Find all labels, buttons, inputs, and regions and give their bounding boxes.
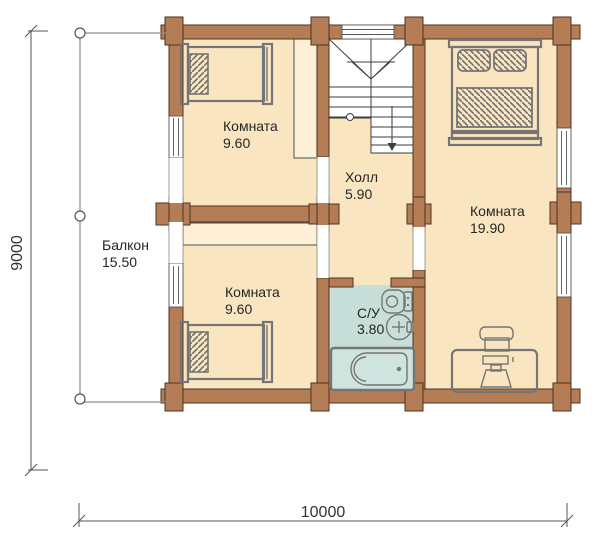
- floor-plan-svg: 9000 10000 Балкон 15.50 Комната 9.60 Хол…: [0, 0, 602, 548]
- room-door-opening: [317, 225, 329, 278]
- wall-bathroom-stub: [391, 278, 425, 287]
- window-icon: [169, 116, 183, 158]
- pillow-icon: [458, 50, 490, 71]
- pillow-icon: [494, 50, 526, 71]
- window-icon: [169, 263, 183, 307]
- window-icon: [342, 25, 394, 39]
- drain-icon: [397, 367, 401, 371]
- pillow-icon: [190, 332, 208, 372]
- balcony-post-icon: [75, 28, 85, 38]
- window-icon: [557, 128, 571, 188]
- dimension-horizontal-label: 10000: [301, 504, 346, 521]
- room-bottom-left-label: Комната: [225, 284, 280, 300]
- wall-bathroom-stub: [329, 278, 353, 287]
- bathtub-icon: [331, 348, 414, 390]
- balcony-label: Балкон: [102, 237, 149, 253]
- wardrobe-icon: [294, 39, 317, 158]
- pillow-icon: [190, 54, 208, 94]
- wardrobe-icon: [183, 223, 317, 245]
- wall-hall-left: [317, 278, 329, 389]
- blanket-icon: [457, 88, 532, 127]
- window-icon: [557, 233, 571, 297]
- balcony-door-opening: [169, 158, 183, 203]
- room-top-left-area: 9.60: [223, 135, 250, 151]
- room-right-label: Комната: [470, 203, 525, 219]
- wall-right: [557, 297, 571, 397]
- balcony-area: 15.50: [102, 254, 137, 270]
- dimension-bottom: 10000: [73, 503, 573, 527]
- wall-hall-left: [317, 39, 329, 157]
- room-right-area: 19.90: [470, 220, 505, 236]
- room-door-opening: [413, 227, 425, 270]
- hall-label: Холл: [345, 169, 378, 185]
- wall-middle: [169, 206, 329, 222]
- dimension-vertical-label: 9000: [9, 235, 26, 271]
- bathroom-label: С/У: [357, 305, 380, 321]
- dimension-left: 9000: [9, 25, 48, 476]
- room-top-left-label: Комната: [223, 118, 278, 134]
- bathroom-area: 3.80: [357, 321, 384, 337]
- room-bottom-left-area: 9.60: [225, 301, 252, 317]
- newel-post-icon: [347, 114, 354, 121]
- balcony-post-icon: [75, 211, 85, 221]
- wall-right: [557, 31, 571, 128]
- hall-area: 5.90: [345, 186, 372, 202]
- balcony-post-icon: [75, 394, 85, 404]
- balcony-door-opening: [169, 222, 183, 263]
- floor-plan-page: 9000 10000 Балкон 15.50 Комната 9.60 Хол…: [0, 0, 602, 548]
- room-door-opening: [317, 157, 329, 203]
- balcony-outline: [75, 28, 169, 404]
